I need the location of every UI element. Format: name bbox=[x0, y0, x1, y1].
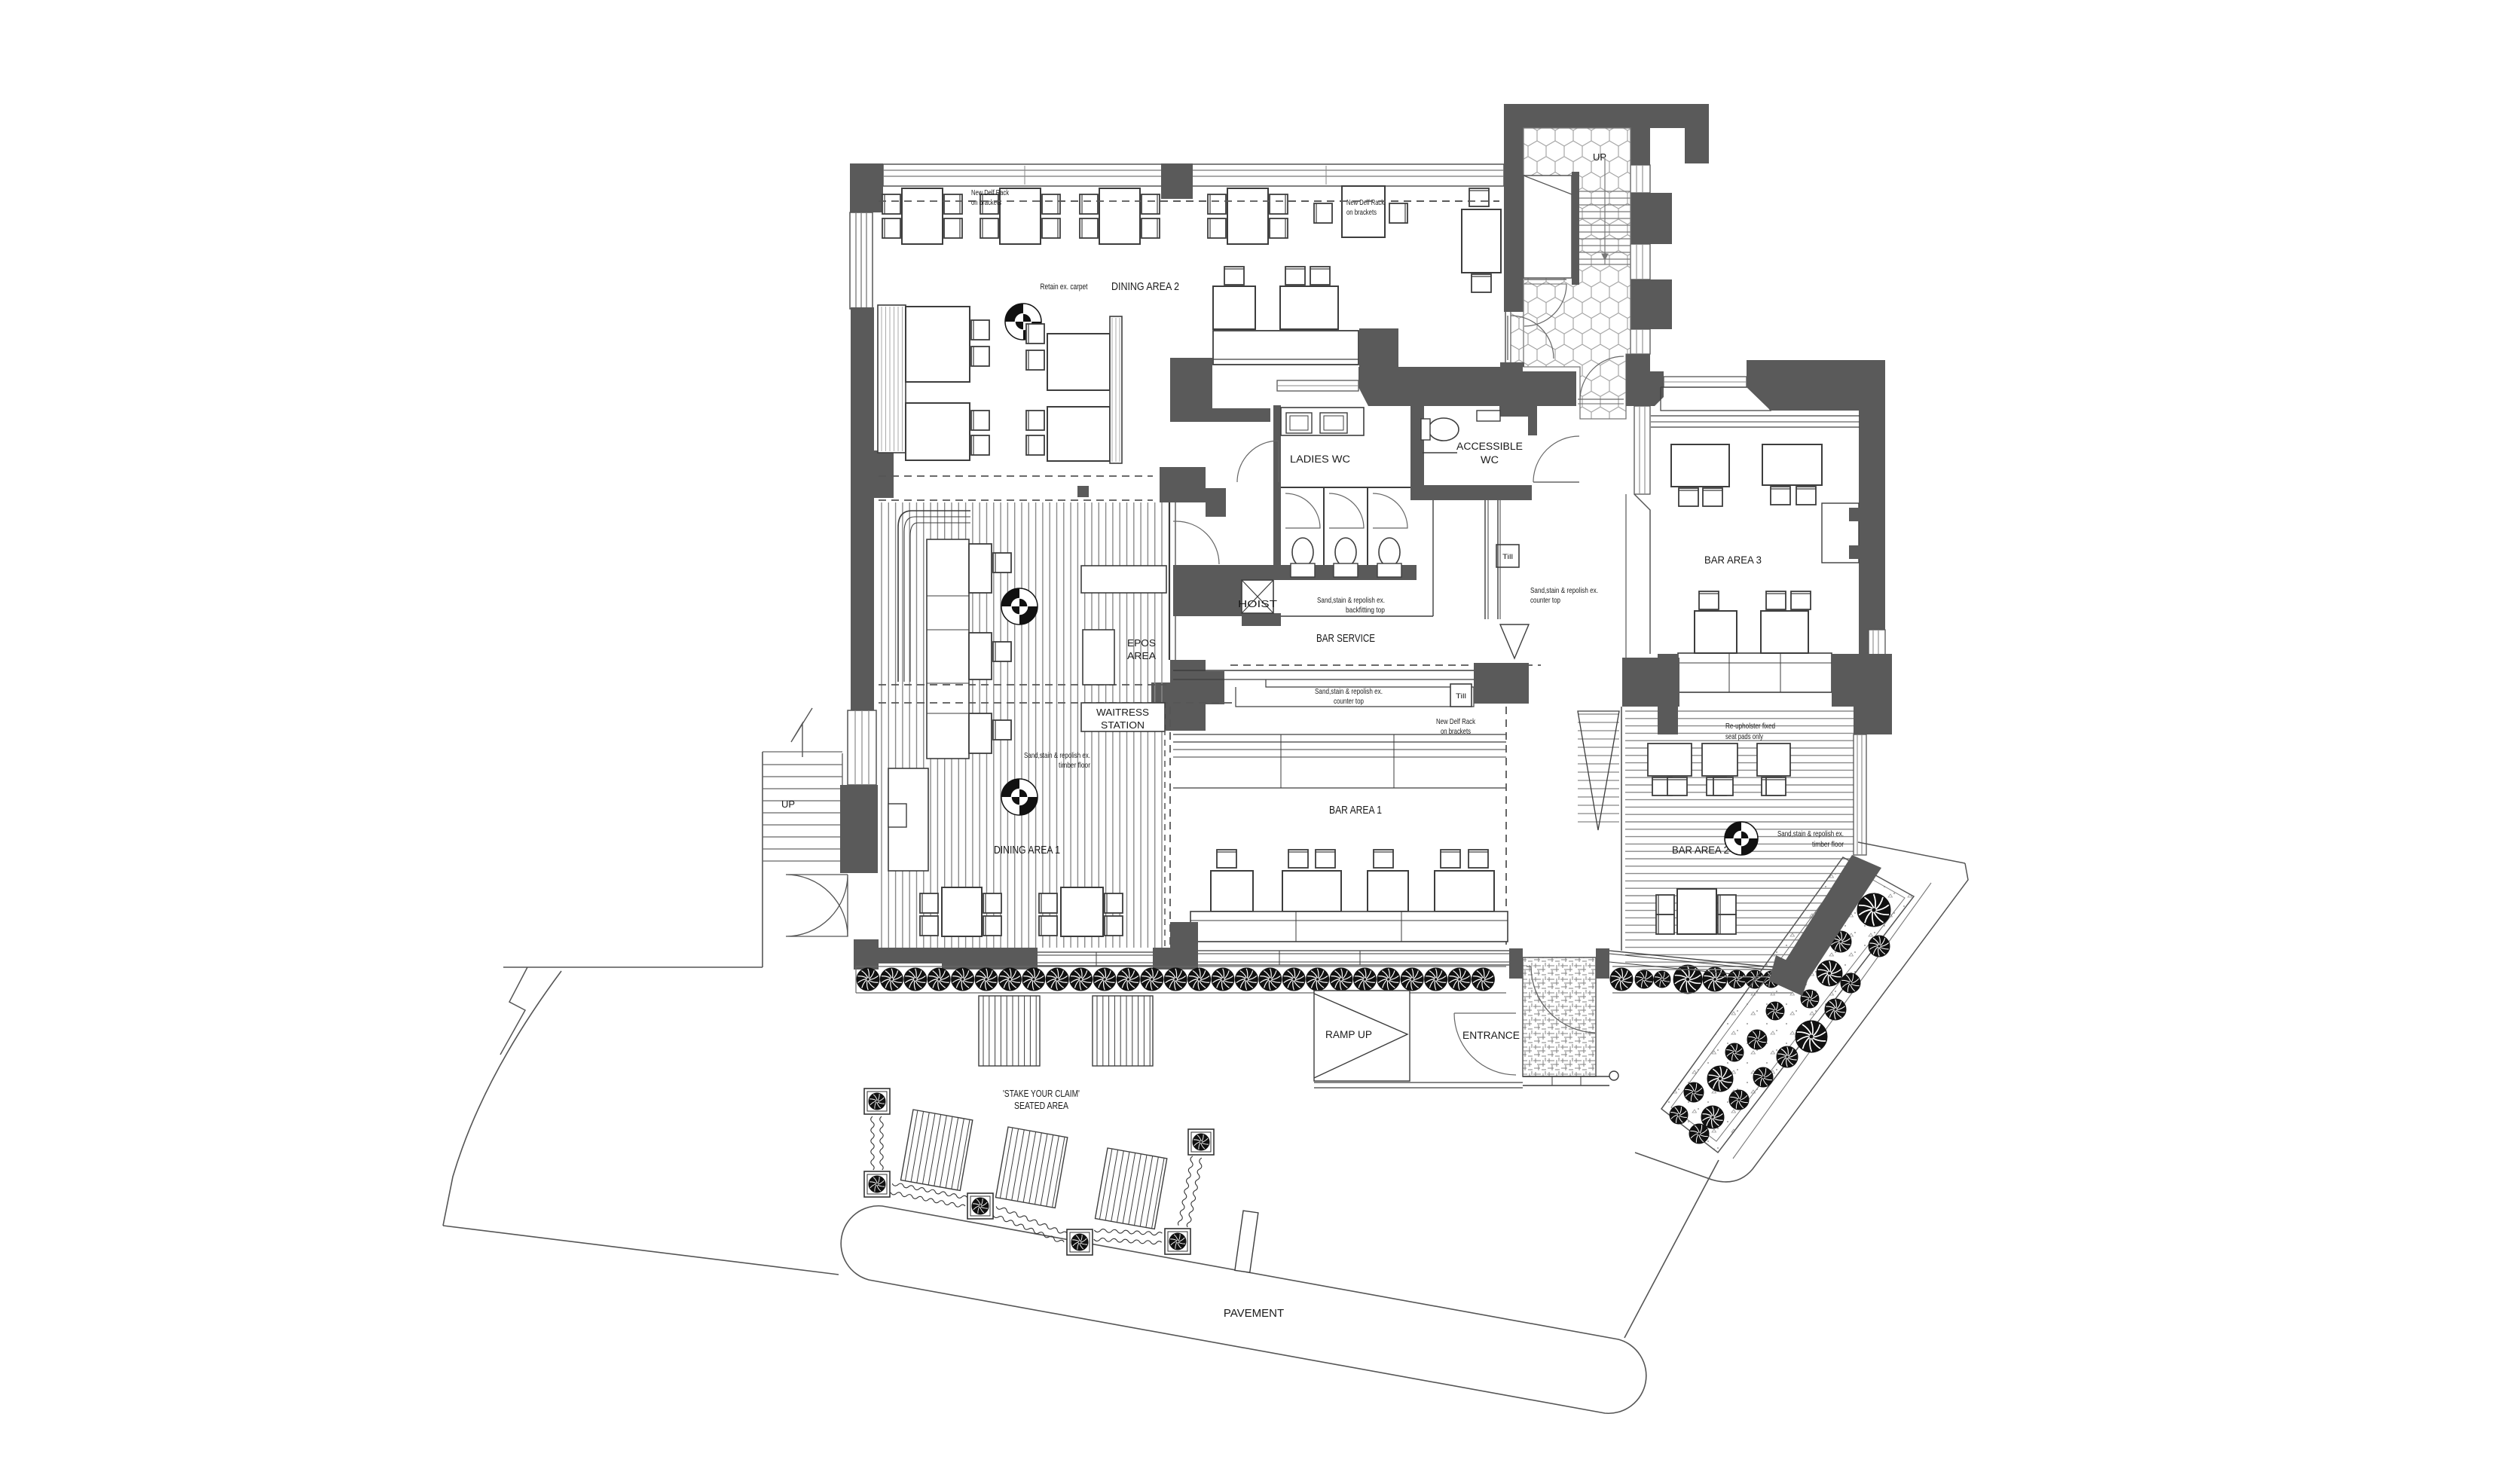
svg-text:WAITRESS: WAITRESS bbox=[1096, 707, 1149, 718]
svg-text:Retain ex. carpet: Retain ex. carpet bbox=[1041, 282, 1088, 292]
svg-text:ACCESSIBLE: ACCESSIBLE bbox=[1456, 441, 1523, 452]
svg-text:New Delf Rack: New Delf Rack bbox=[1346, 198, 1385, 207]
svg-text:New Delf Rack: New Delf Rack bbox=[1436, 717, 1476, 726]
svg-text:on brackets: on brackets bbox=[971, 198, 1001, 207]
svg-text:UP: UP bbox=[781, 798, 795, 810]
svg-text:Sand,stain & repolish ex.: Sand,stain & repolish ex. bbox=[1530, 586, 1598, 595]
svg-text:timber floor: timber floor bbox=[1812, 840, 1844, 849]
svg-text:EPOS: EPOS bbox=[1127, 637, 1156, 649]
svg-text:BAR SERVICE: BAR SERVICE bbox=[1316, 632, 1375, 645]
svg-text:ENTRANCE: ENTRANCE bbox=[1462, 1030, 1520, 1041]
svg-text:RAMP UP: RAMP UP bbox=[1325, 1029, 1372, 1040]
svg-text:Re-upholster fixed: Re-upholster fixed bbox=[1725, 722, 1775, 731]
svg-text:Till: Till bbox=[1456, 692, 1466, 701]
svg-text:New Delf Rack: New Delf Rack bbox=[971, 188, 1010, 197]
svg-text:Sand,stain & repolish ex.: Sand,stain & repolish ex. bbox=[1024, 751, 1090, 760]
svg-text:DINING AREA 2: DINING AREA 2 bbox=[1111, 280, 1179, 293]
svg-text:SEATED AREA: SEATED AREA bbox=[1014, 1101, 1069, 1111]
svg-text:'STAKE YOUR CLAIM': 'STAKE YOUR CLAIM' bbox=[1003, 1089, 1080, 1099]
svg-text:seat pads only: seat pads only bbox=[1725, 732, 1764, 741]
svg-text:Sand,stain & repolish ex.: Sand,stain & repolish ex. bbox=[1315, 687, 1383, 696]
svg-text:on brackets: on brackets bbox=[1346, 208, 1377, 217]
svg-text:BAR AREA 1: BAR AREA 1 bbox=[1329, 804, 1382, 817]
svg-text:counter top: counter top bbox=[1334, 697, 1364, 706]
svg-text:WC: WC bbox=[1481, 454, 1499, 466]
svg-text:PAVEMENT: PAVEMENT bbox=[1224, 1307, 1284, 1320]
svg-text:backfitting top: backfitting top bbox=[1346, 606, 1385, 615]
svg-text:Sand,stain & repolish ex.: Sand,stain & repolish ex. bbox=[1317, 596, 1385, 605]
svg-text:UP: UP bbox=[1593, 151, 1606, 163]
svg-text:counter top: counter top bbox=[1530, 596, 1560, 605]
svg-text:Till: Till bbox=[1502, 553, 1513, 561]
svg-text:HOIST: HOIST bbox=[1238, 599, 1277, 609]
svg-text:timber floor: timber floor bbox=[1059, 761, 1090, 770]
svg-text:LADIES WC: LADIES WC bbox=[1290, 453, 1350, 465]
svg-text:BAR AREA 3: BAR AREA 3 bbox=[1704, 554, 1762, 566]
svg-text:DINING AREA 1: DINING AREA 1 bbox=[994, 844, 1060, 857]
svg-text:STATION: STATION bbox=[1101, 719, 1145, 731]
svg-text:AREA: AREA bbox=[1127, 650, 1156, 661]
svg-text:Sand,stain & repolish ex.: Sand,stain & repolish ex. bbox=[1777, 829, 1844, 838]
svg-text:BAR AREA 2: BAR AREA 2 bbox=[1672, 844, 1729, 856]
